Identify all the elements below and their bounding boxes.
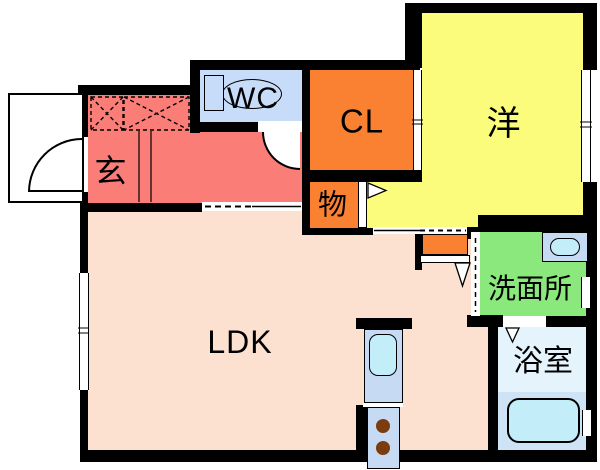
storage-cabinet-door xyxy=(420,255,470,263)
bathroom-door-opening xyxy=(503,316,546,326)
wall-kitchen-cap xyxy=(356,318,412,329)
room-genkan-upper xyxy=(88,95,196,131)
toilet-tank-icon xyxy=(204,75,224,111)
washbasin-bowl-icon xyxy=(550,238,580,256)
wc-door-opening xyxy=(258,121,302,132)
floor-plan: 玄 WC CL 洋 物 LDK 洗面所 浴室 xyxy=(0,0,600,470)
room-western-ext xyxy=(367,182,422,228)
wall-right-upper xyxy=(583,3,597,70)
closet-sliding-door xyxy=(413,70,422,170)
wall-top xyxy=(405,3,597,13)
sliding-door-genkan-ldk xyxy=(202,202,302,211)
window-washroom xyxy=(581,277,591,308)
room-bathroom-label: 浴室 xyxy=(513,347,573,377)
wall-bath-left xyxy=(488,315,498,452)
kitchen-sink-icon xyxy=(369,334,397,376)
wall-kitchen-stub xyxy=(356,405,367,452)
wall-bottom xyxy=(80,450,597,462)
stove-burner-icon xyxy=(376,419,390,433)
window-western-right xyxy=(581,70,591,182)
room-wc-label: WC xyxy=(227,84,279,114)
room-western-label: 洋 xyxy=(487,107,522,141)
washroom-sliding-door xyxy=(471,232,480,316)
wall-washroom-bath-b xyxy=(546,316,588,327)
room-washroom-label: 洗面所 xyxy=(488,275,572,303)
entry-door-leaf-icon xyxy=(28,190,82,192)
bathtub-icon xyxy=(507,398,580,443)
room-genkan-label: 玄 xyxy=(94,155,127,187)
wall-left-c xyxy=(80,390,88,452)
wall-genkan-ldk xyxy=(80,203,202,212)
window-bathroom xyxy=(582,410,592,436)
wall-western-left xyxy=(405,3,422,68)
wall-storagebox-stub xyxy=(415,232,422,270)
wall-wc-bottom xyxy=(196,122,258,132)
stove-burner-icon xyxy=(376,441,390,455)
window-ldk-left xyxy=(79,273,89,390)
wall-storage-bottom xyxy=(302,228,373,235)
wall-western-bottom xyxy=(478,215,597,232)
wall-genkan-top xyxy=(78,85,198,95)
room-storage-label: 物 xyxy=(318,192,348,221)
wall-wc-cl-divider xyxy=(302,60,310,230)
storage-cabinet xyxy=(422,234,468,255)
room-ldk-label: LDK xyxy=(207,326,272,358)
sliding-door-western-ldk xyxy=(373,227,467,234)
room-closet-label: CL xyxy=(340,105,384,138)
storage-door xyxy=(358,181,367,228)
stove-unit-icon xyxy=(367,407,400,469)
